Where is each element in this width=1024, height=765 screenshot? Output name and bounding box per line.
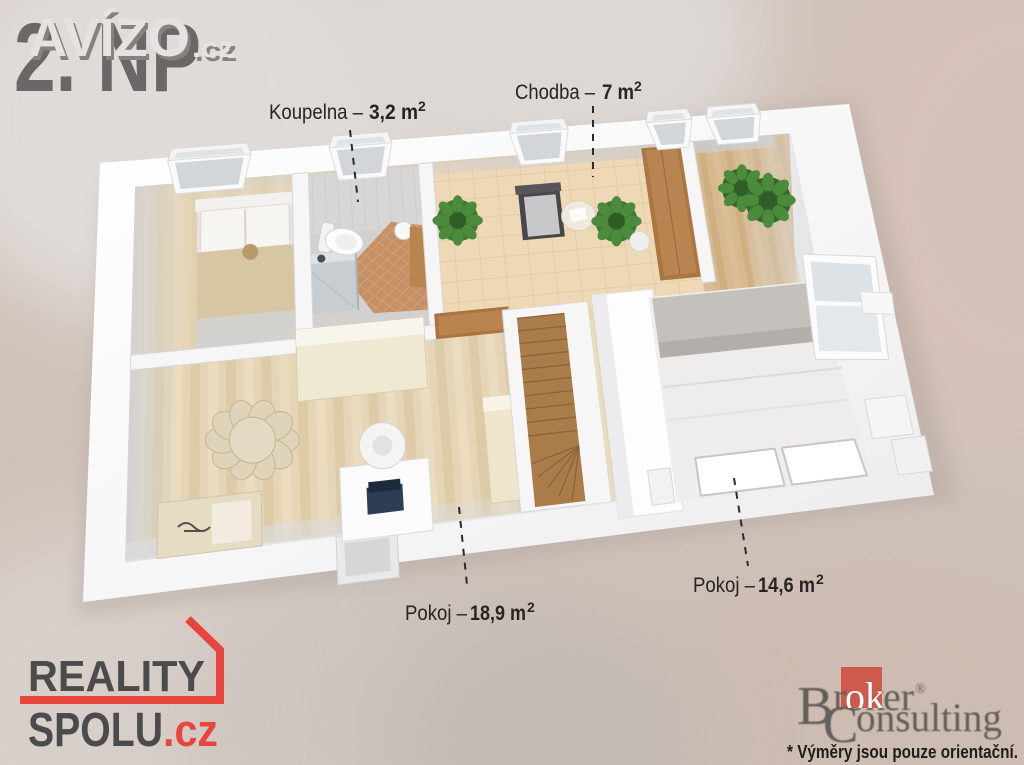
svg-text:AVÍZO: AVÍZO <box>28 8 190 68</box>
svg-text:.cz: .cz <box>163 705 218 756</box>
svg-text:2: 2 <box>816 571 824 587</box>
svg-text:SPOLU: SPOLU <box>28 704 163 757</box>
svg-text:3,2 m: 3,2 m <box>369 100 418 124</box>
svg-text:18,9 m: 18,9 m <box>470 601 526 625</box>
svg-text:2: 2 <box>418 98 426 114</box>
svg-text:2: 2 <box>634 78 642 94</box>
svg-text:REALITY: REALITY <box>28 652 205 701</box>
svg-text:.cz: .cz <box>192 32 234 64</box>
svg-text:Pokoj –: Pokoj – <box>405 601 467 625</box>
svg-text:Chodba –: Chodba – <box>515 80 595 104</box>
svg-text:7 m: 7 m <box>602 80 634 104</box>
svg-text:14,6 m: 14,6 m <box>758 573 815 597</box>
svg-text:Pokoj –: Pokoj – <box>693 573 755 597</box>
svg-text:* Výměry jsou pouze orientační: * Výměry jsou pouze orientační. <box>787 742 1018 762</box>
svg-text:2: 2 <box>527 599 535 615</box>
svg-text:Koupelna –: Koupelna – <box>269 100 363 124</box>
